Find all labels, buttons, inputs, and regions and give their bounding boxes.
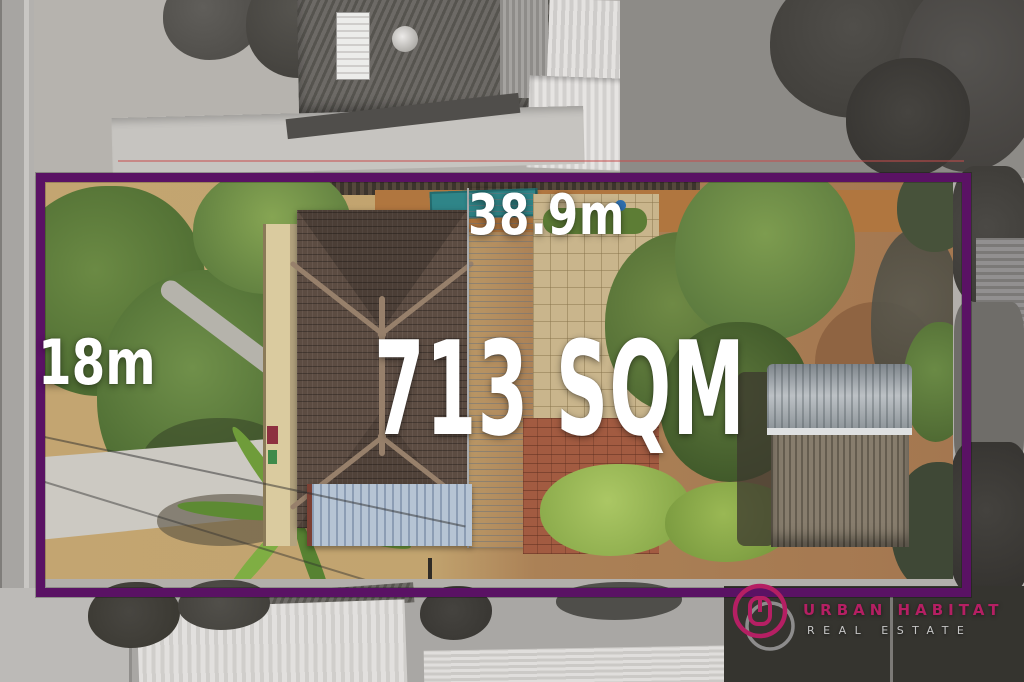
patio-roof: [307, 484, 472, 546]
side-dimension-label: 18m: [38, 332, 156, 394]
tree-right-strip-3: [950, 442, 1024, 594]
satellite-dish: [392, 26, 418, 52]
survey-red-line: [118, 160, 964, 162]
brand-name-text: URBAN HABITAT: [803, 601, 1003, 619]
overlapping-rings-logo-icon: [728, 582, 796, 654]
frontage-dimension-label: 38.9m: [468, 188, 625, 244]
shed-wall: [771, 435, 909, 547]
fence-post: [428, 558, 432, 579]
carport-strip: [263, 224, 297, 546]
road-left: [0, 0, 34, 682]
carport-green-item: [268, 450, 277, 464]
carport-red-item: [267, 426, 278, 444]
brand-subtitle-text: REAL ESTATE: [807, 624, 972, 637]
roof-skylight-panel: [336, 12, 370, 80]
land-area-label: 713 SQM: [374, 324, 746, 454]
aerial-property-photo: 38.9m 18m 713 SQM URBAN HABITAT REAL EST…: [0, 0, 1024, 682]
bottom-white-roof-2: [424, 645, 737, 682]
shed-ridge-cap: [767, 428, 912, 435]
shed-roof: [767, 364, 912, 430]
